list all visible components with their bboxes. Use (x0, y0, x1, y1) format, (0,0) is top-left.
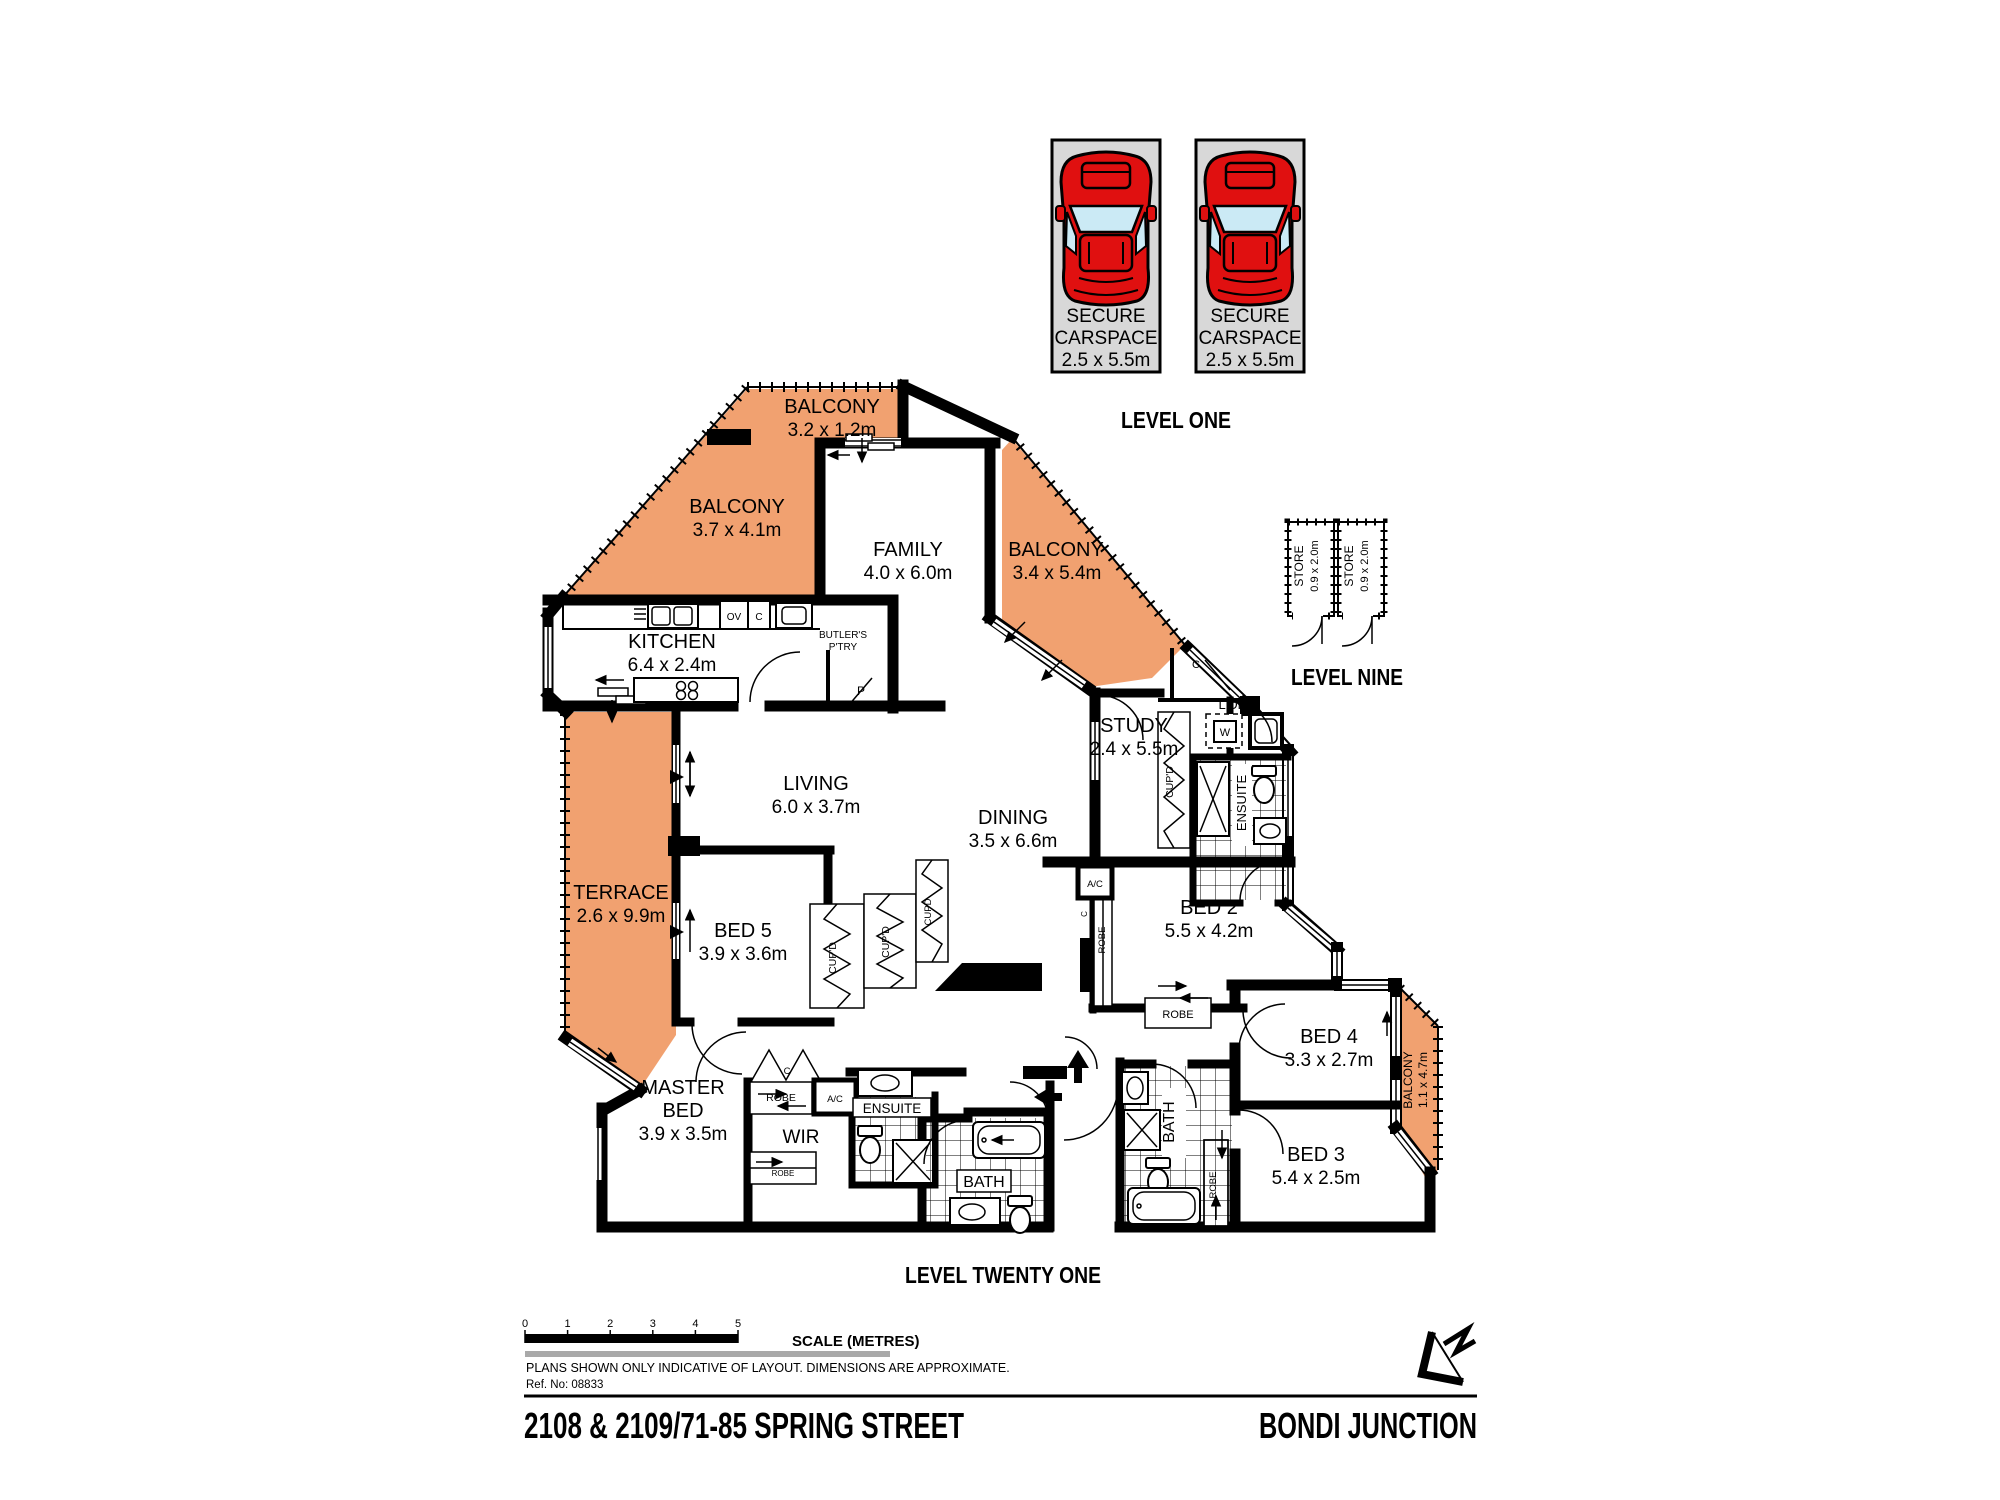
planter (707, 429, 751, 445)
store-label: STORE (1292, 545, 1306, 586)
property-address: 2108 & 2109/71-85 SPRING STREET (524, 1405, 964, 1446)
disclaimer-text: PLANS SHOWN ONLY INDICATIVE OF LAYOUT. D… (526, 1361, 1010, 1375)
room-label-terrace: TERRACE (573, 882, 669, 904)
carspace-label: SECURE (1210, 306, 1289, 327)
bathrooms (853, 760, 1286, 1233)
svg-text:3.4 x 5.4m: 3.4 x 5.4m (1013, 563, 1102, 584)
store-label: STORE (1342, 545, 1356, 586)
ensuite-top-label: ENSUITE (1234, 775, 1249, 832)
carspace-label: CARSPACE (1054, 328, 1157, 349)
svg-text:5: 5 (735, 1318, 741, 1330)
floorplan-canvas: SECURE CARSPACE 2.5 x 5.5m SECURE CARSPA… (0, 0, 2000, 1500)
laundry-label: L'DRY (1219, 697, 1256, 712)
room-label-master: MASTER (641, 1077, 724, 1099)
store-dims: 0.9 x 2.0m (1359, 540, 1371, 591)
wir-label: WIR (783, 1127, 820, 1148)
room-label-family: FAMILY (873, 539, 943, 561)
scale-bar: 0 1 2 3 4 5 SCALE (METRES) PLANS SHOWN O… (522, 1318, 1010, 1391)
oven-label: OV (727, 612, 742, 623)
svg-text:4.0 x 6.0m: 4.0 x 6.0m (864, 563, 953, 584)
svg-text:1.1 x 4.7m: 1.1 x 4.7m (1416, 1052, 1430, 1108)
svg-text:3.9 x 3.6m: 3.9 x 3.6m (699, 944, 788, 965)
divider-gray (525, 1351, 890, 1357)
level-nine-title: LEVEL NINE (1291, 664, 1403, 690)
ensuite-master-label: ENSUITE (863, 1101, 922, 1116)
svg-text:BED: BED (662, 1100, 703, 1122)
robe-label: ROBE (1097, 927, 1108, 954)
island-bench (634, 678, 738, 702)
svg-text:1: 1 (565, 1318, 571, 1330)
bath-centre-label: BATH (963, 1174, 1004, 1191)
svg-text:2: 2 (607, 1318, 613, 1330)
cooktop-label: C (755, 612, 762, 623)
robe-label: ROBE (766, 1092, 796, 1104)
apartment-plan: BALCONY 3.2 x 1.2m BALCONY 3.7 x 4.1m FA… (548, 385, 1438, 1288)
room-label-balcony-right: BALCONY (1008, 539, 1104, 561)
robe-label: ROBE (772, 1169, 795, 1178)
svg-text:P'TRY: P'TRY (829, 642, 858, 653)
store-dims: 0.9 x 2.0m (1309, 540, 1321, 591)
svg-text:3: 3 (650, 1318, 656, 1330)
cupboard-label: CUP'D (880, 926, 892, 958)
room-label-bed5: BED 5 (714, 920, 772, 942)
closet-label: C (1192, 659, 1200, 671)
svg-text:2.6 x 9.9m: 2.6 x 9.9m (577, 906, 666, 927)
carspace-label: CARSPACE (1198, 328, 1301, 349)
washer-label: W (1220, 727, 1231, 739)
bath-right-label: BATH (1161, 1101, 1178, 1142)
room-label-bed2: BED 2 (1180, 897, 1238, 919)
room-label-balcony-small: BALCONY (1401, 1051, 1415, 1108)
svg-text:3.9 x 3.5m: 3.9 x 3.5m (639, 1124, 728, 1145)
butlers-pantry-label: BUTLER'S (819, 630, 867, 641)
room-label-living: LIVING (783, 773, 849, 795)
closet-label: C (1080, 911, 1089, 917)
cupboard-label: CUPD (923, 898, 934, 925)
carspace-dims: 2.5 x 5.5m (1062, 350, 1151, 371)
level-one-title: LEVEL ONE (1121, 407, 1231, 433)
carspace-label: SECURE (1066, 306, 1145, 327)
room-label-bed3: BED 3 (1287, 1144, 1345, 1166)
cupboard-label: CUP'D (1164, 766, 1176, 798)
svg-text:3.3 x 2.7m: 3.3 x 2.7m (1285, 1050, 1374, 1071)
svg-text:3.5 x 6.6m: 3.5 x 6.6m (969, 831, 1058, 852)
room-label-balcony-top: BALCONY (784, 396, 880, 418)
level-one-carspaces: SECURE CARSPACE 2.5 x 5.5m SECURE CARSPA… (1052, 140, 1304, 433)
room-label-kitchen: KITCHEN (628, 631, 716, 653)
level-twenty-one-title: LEVEL TWENTY ONE (905, 1262, 1101, 1288)
entry-arrow-up (1067, 1050, 1089, 1083)
carspace-dims: 2.5 x 5.5m (1206, 350, 1295, 371)
ac-label: A/C (1087, 879, 1103, 890)
svg-text:3.7 x 4.1m: 3.7 x 4.1m (693, 520, 782, 541)
svg-text:0: 0 (522, 1318, 528, 1330)
ref-number: Ref. No: 08833 (526, 1379, 603, 1391)
closet-label: C (784, 1066, 791, 1077)
robe-label: ROBE (1162, 1009, 1193, 1021)
svg-text:6.4 x 2.4m: 6.4 x 2.4m (628, 655, 717, 676)
floorplan-page: SECURE CARSPACE 2.5 x 5.5m SECURE CARSPA… (0, 0, 2000, 1500)
scale-title: SCALE (METRES) (792, 1333, 920, 1350)
ac-label: A/C (827, 1094, 843, 1105)
svg-text:5.5 x 4.2m: 5.5 x 4.2m (1165, 921, 1254, 942)
property-locality: BONDI JUNCTION (1259, 1405, 1477, 1446)
room-labels: BALCONY 3.2 x 1.2m BALCONY 3.7 x 4.1m FA… (573, 396, 1430, 1198)
entry-arrow-left (1034, 1086, 1062, 1108)
agency-logo (1422, 1329, 1475, 1382)
room-label-balcony-left: BALCONY (689, 496, 785, 518)
svg-text:6.0 x 3.7m: 6.0 x 3.7m (772, 797, 861, 818)
footer: 2108 & 2109/71-85 SPRING STREET BONDI JU… (524, 1329, 1477, 1446)
pantry-label: P (857, 684, 865, 698)
svg-text:3.2 x 1.2m: 3.2 x 1.2m (788, 420, 877, 441)
level-nine-stores: STORE 0.9 x 2.0m STORE 0.9 x 2.0m LEVEL … (1288, 522, 1403, 690)
svg-text:5.4 x 2.5m: 5.4 x 2.5m (1272, 1168, 1361, 1189)
robe-label: ROBE (1208, 1172, 1219, 1199)
cupboard-label: CUP'D (827, 942, 839, 974)
svg-text:2.4 x 5.5m: 2.4 x 5.5m (1090, 739, 1179, 760)
room-label-study: STUDY (1100, 715, 1168, 737)
svg-text:4: 4 (692, 1318, 698, 1330)
room-label-dining: DINING (978, 807, 1048, 829)
room-label-bed4: BED 4 (1300, 1026, 1358, 1048)
